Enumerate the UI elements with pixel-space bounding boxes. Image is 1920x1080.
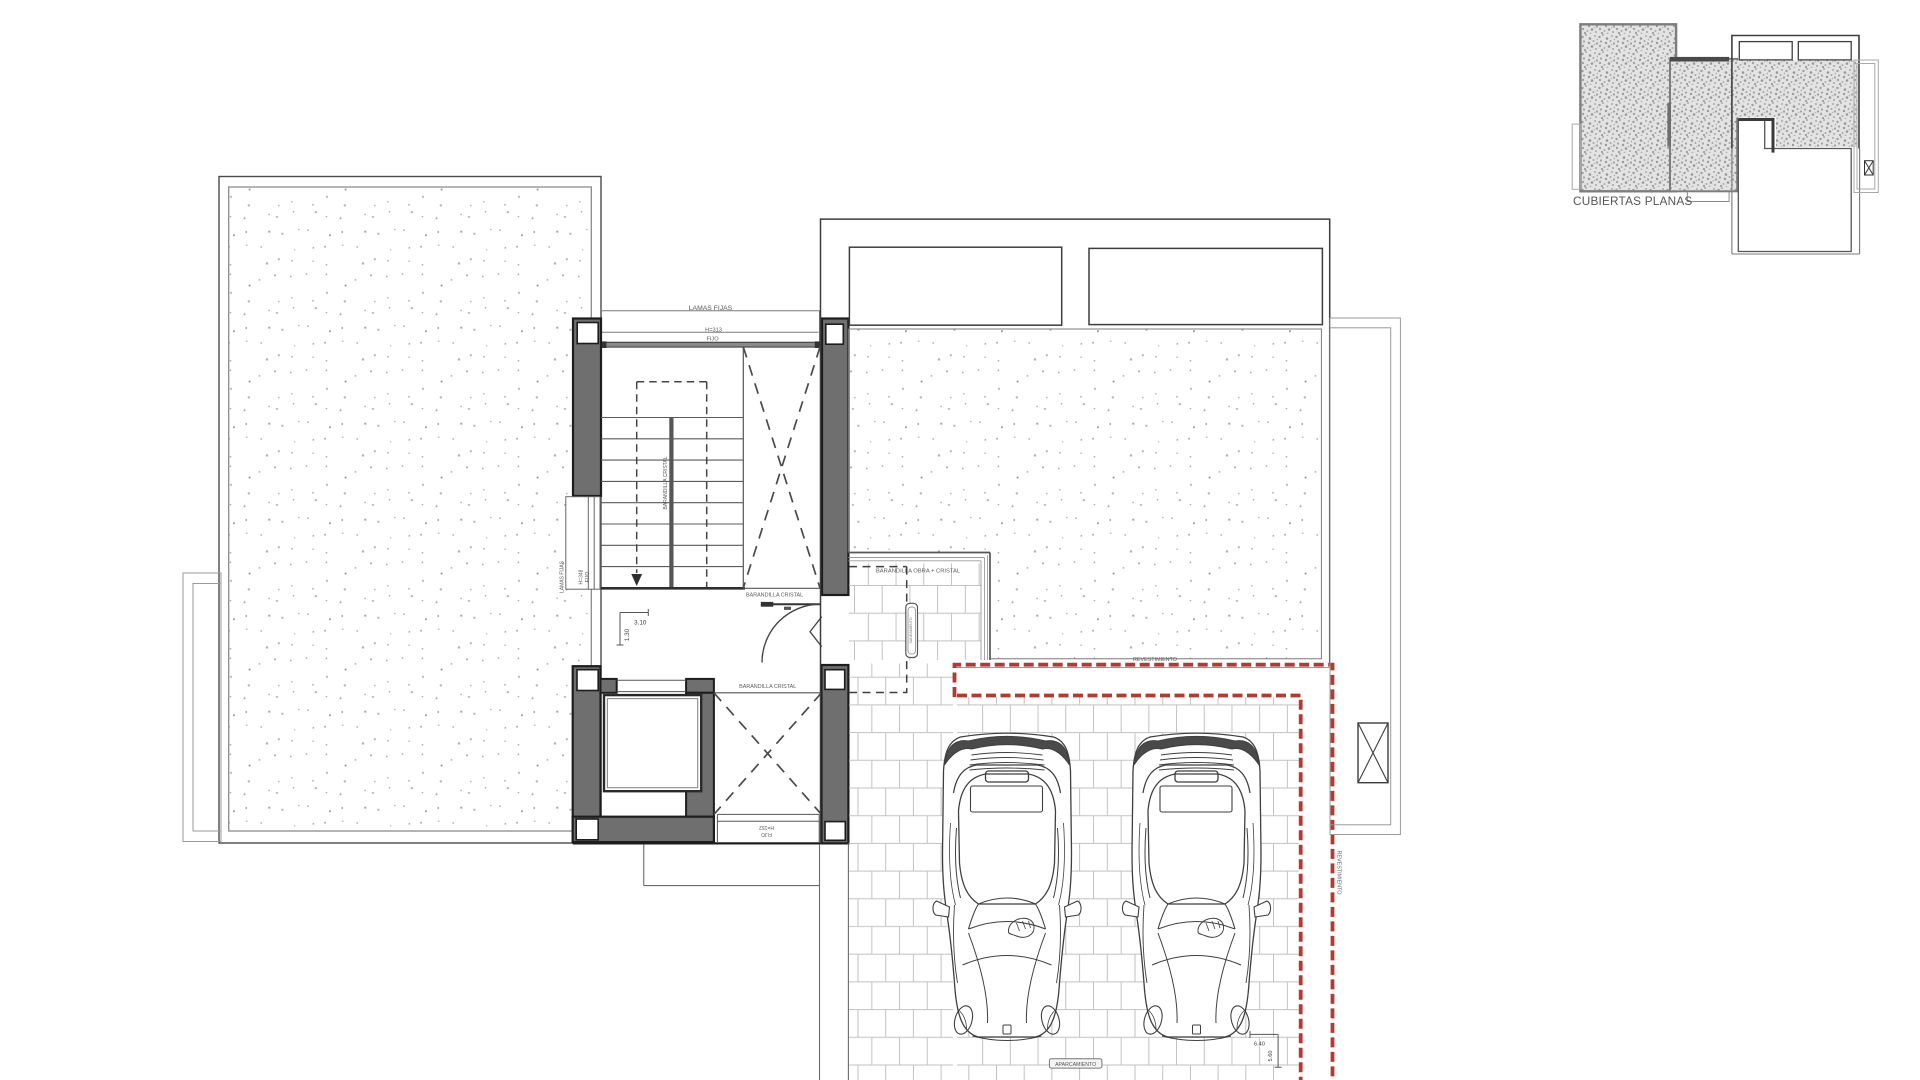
svg-text:APARCAMIENTO: APARCAMIENTO bbox=[1055, 1062, 1096, 1068]
svg-text:H=348: H=348 bbox=[579, 569, 585, 584]
svg-text:BARANDILLA OBRA + CRISTAL: BARANDILLA OBRA + CRISTAL bbox=[876, 569, 961, 575]
svg-text:BARANDILLA CRISTAL: BARANDILLA CRISTAL bbox=[739, 684, 796, 690]
svg-text:REVESTIMIENTO: REVESTIMIENTO bbox=[1336, 851, 1342, 895]
svg-text:REVESTIMIENTO: REVESTIMIENTO bbox=[1133, 657, 1177, 663]
svg-text:H=313: H=313 bbox=[705, 328, 722, 334]
svg-text:BARANDILLA CRISTAL: BARANDILLA CRISTAL bbox=[746, 593, 803, 599]
svg-text:6.40: 6.40 bbox=[1254, 1042, 1265, 1048]
svg-text:1.30: 1.30 bbox=[624, 628, 631, 641]
svg-text:LAMAS FIJAS: LAMAS FIJAS bbox=[560, 560, 566, 593]
svg-text:FIJO: FIJO bbox=[761, 831, 772, 837]
svg-text:LAMAS FIJAS: LAMAS FIJAS bbox=[689, 305, 733, 312]
svg-text:5.60: 5.60 bbox=[1268, 1051, 1274, 1062]
svg-text:BARANDILLA CRISTAL: BARANDILLA CRISTAL bbox=[663, 456, 669, 509]
svg-text:FIJO: FIJO bbox=[585, 571, 591, 582]
svg-text:H=152: H=152 bbox=[759, 824, 774, 830]
svg-text:CUBIERTAS PLANAS: CUBIERTAS PLANAS bbox=[1573, 194, 1692, 208]
svg-text:SANEAMIENTO: SANEAMIENTO bbox=[909, 617, 913, 643]
svg-text:3.10: 3.10 bbox=[634, 620, 647, 627]
svg-text:FIJO: FIJO bbox=[706, 336, 719, 342]
